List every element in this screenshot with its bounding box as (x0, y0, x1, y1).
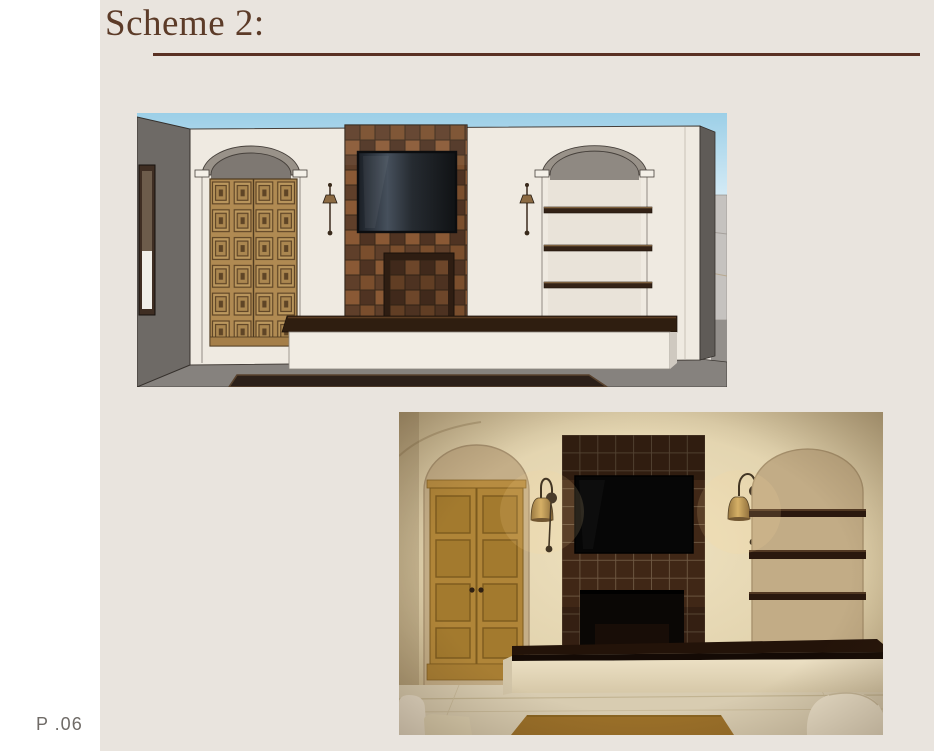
sketchup-elevation-svg (137, 113, 727, 387)
impost-block (293, 170, 307, 177)
page-number: P .06 (36, 714, 83, 735)
left-margin-strip (0, 0, 100, 751)
bench-hearth (282, 316, 677, 369)
figure-sketchup-elevation (137, 113, 727, 387)
impost-block (535, 170, 549, 177)
title-underline (153, 53, 920, 56)
impost-block (640, 170, 654, 177)
impost-block (195, 170, 209, 177)
figure-photorealistic-render (399, 412, 883, 735)
tv (358, 152, 456, 232)
photo-lighting (399, 412, 883, 735)
carved-wood-door (210, 179, 297, 346)
floor-rug (229, 375, 607, 387)
side-wall (137, 117, 190, 387)
presentation-page: Scheme 2: (0, 0, 934, 751)
photorealistic-render-svg (399, 412, 883, 735)
firebox (384, 253, 454, 317)
page-title: Scheme 2: (105, 2, 265, 45)
